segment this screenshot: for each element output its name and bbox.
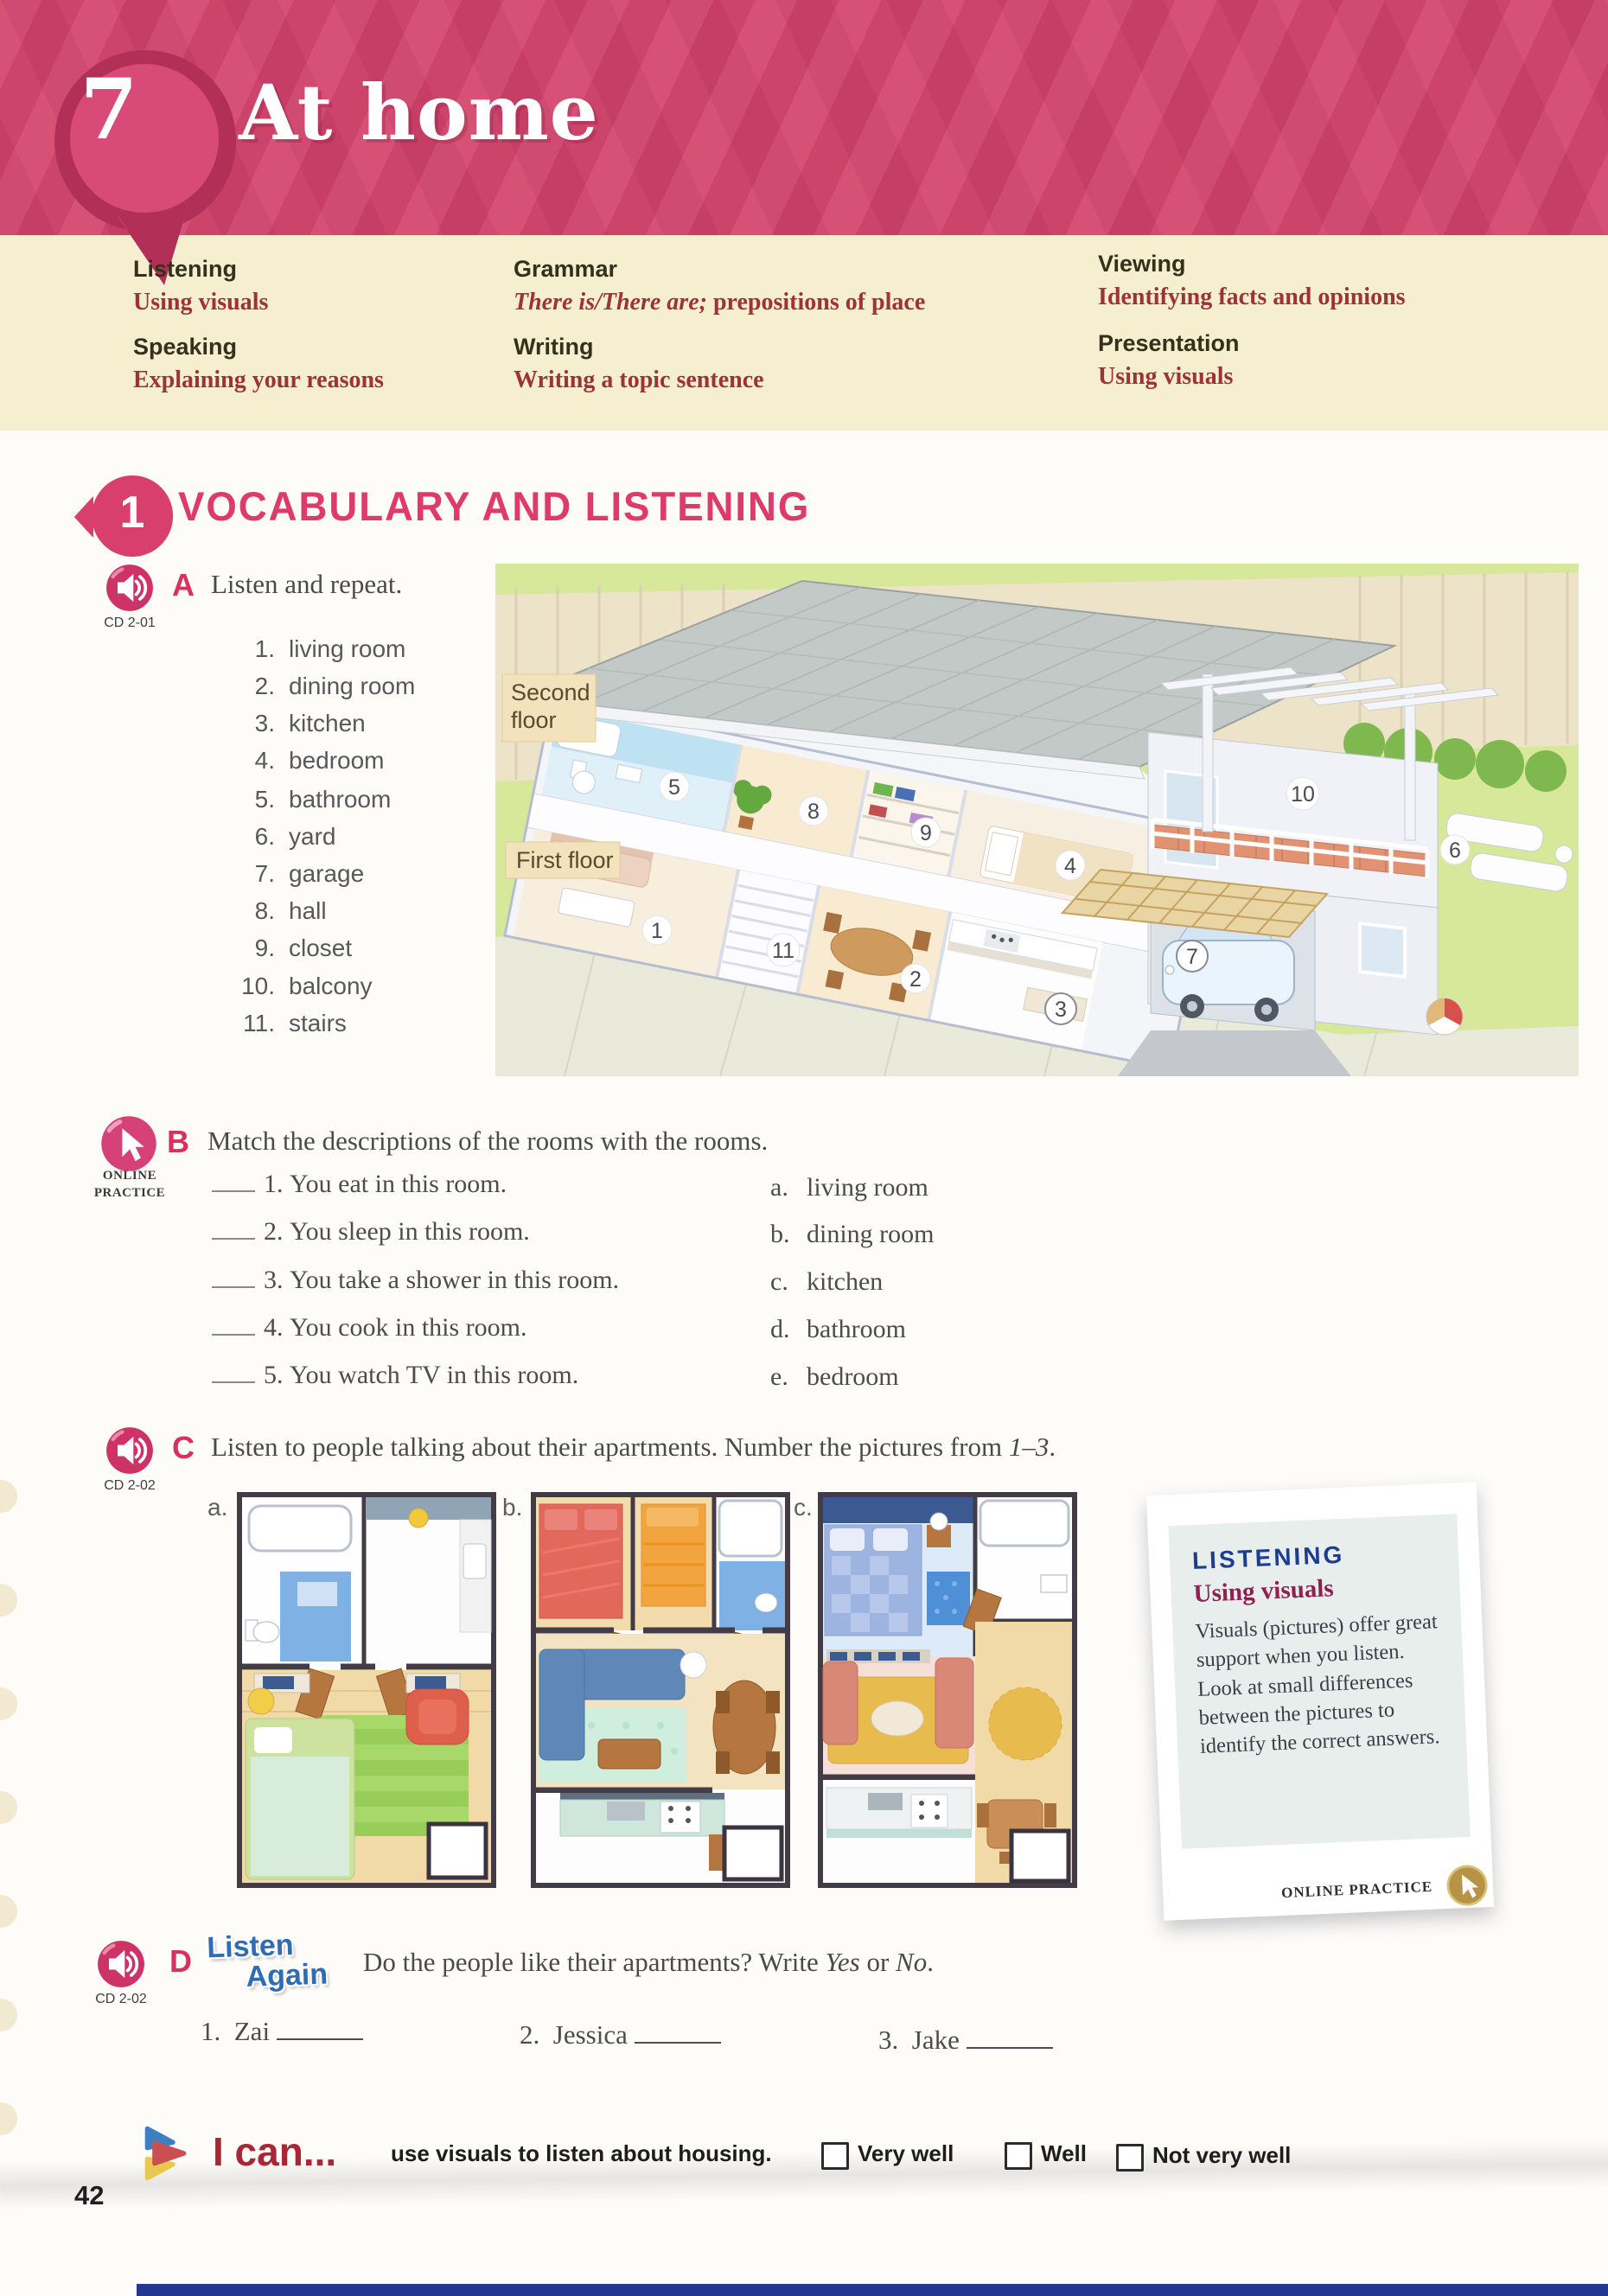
- floor-plan-a: [237, 1492, 496, 1888]
- section-number: 1: [102, 487, 163, 539]
- floor-plan-b: [531, 1492, 790, 1888]
- edge-decoration: [0, 2102, 17, 2135]
- tip-online-practice-label: ONLINE PRACTICE: [1281, 1878, 1433, 1902]
- vocab-item: 4.bedroom: [216, 746, 475, 775]
- answer-box-b[interactable]: [724, 1827, 782, 1879]
- answer-blank[interactable]: [212, 1361, 255, 1383]
- vocab-item: 5.bathroom: [216, 785, 475, 814]
- audio-icon[interactable]: [97, 1940, 145, 1988]
- picture-label: a.: [207, 1494, 227, 1521]
- svg-text:Second: Second: [511, 679, 590, 705]
- edge-decoration: [0, 1480, 17, 1513]
- textbook-page: 7 At home Listening Using visuals Speaki…: [0, 0, 1608, 2296]
- skill-value: Using visuals: [133, 289, 268, 316]
- svg-text:5: 5: [668, 775, 680, 800]
- edge-decoration: [0, 1687, 17, 1720]
- edge-decoration: [0, 1791, 17, 1824]
- svg-text:3: 3: [1055, 998, 1067, 1022]
- svg-text:First floor: First floor: [516, 847, 614, 873]
- unit-number: 7: [74, 61, 144, 158]
- svg-text:1: 1: [651, 919, 663, 943]
- skill-label: Presentation: [1098, 330, 1240, 357]
- online-practice-icon[interactable]: [100, 1115, 157, 1172]
- picture-label: b.: [502, 1494, 522, 1521]
- match-item[interactable]: 3. You take a shower in this room.: [212, 1265, 619, 1296]
- vocab-item: 7.garage: [216, 859, 475, 889]
- exercise-c-instruction: Listen to people talking about their apa…: [211, 1432, 1056, 1463]
- page-number: 42: [74, 2180, 104, 2211]
- checkbox-label: Very well: [858, 2140, 954, 2167]
- listen-again-logo: Listen Again: [207, 1928, 329, 1996]
- online-practice-label: PRACTICE: [78, 1186, 182, 1201]
- i-can-label: I can...: [213, 2128, 336, 2175]
- tip-subtitle: Using visuals: [1193, 1570, 1438, 1609]
- vocab-item: 3.kitchen: [216, 709, 475, 738]
- edge-decoration: [0, 1895, 17, 1928]
- floor-plan-c: [818, 1492, 1077, 1888]
- answer-blank[interactable]: [212, 1266, 255, 1288]
- next-page-edge: [137, 2284, 1608, 2296]
- answer-blank[interactable]: [212, 1313, 255, 1336]
- exercise-c-letter: C: [172, 1430, 195, 1466]
- cd-track-label: CD 2-01: [78, 615, 182, 631]
- edge-decoration: [0, 1999, 17, 2031]
- vocab-item: 8.hall: [216, 896, 475, 926]
- vocab-item: 11.stairs: [216, 1009, 475, 1038]
- svg-text:10: 10: [1291, 782, 1315, 807]
- unit-number-badge: [35, 35, 259, 294]
- svg-text:9: 9: [920, 821, 932, 845]
- exercise-d-letter: D: [169, 1943, 192, 1980]
- match-item[interactable]: 1. You eat in this room.: [212, 1169, 507, 1200]
- answer-blank[interactable]: [635, 2021, 721, 2044]
- unit-title: At home: [239, 67, 599, 157]
- beach-ball: [1426, 998, 1463, 1035]
- skill-value: Identifying facts and opinions: [1098, 284, 1406, 311]
- online-practice-icon[interactable]: [1445, 1864, 1489, 1907]
- skill-label: Writing: [514, 334, 593, 360]
- checkbox-label: Well: [1041, 2140, 1087, 2167]
- cd-track-label: CD 2-02: [78, 1478, 182, 1494]
- checkbox-very-well[interactable]: [821, 2142, 849, 2170]
- svg-text:11: 11: [772, 939, 794, 963]
- skill-label: Grammar: [514, 256, 617, 283]
- tip-title: LISTENING: [1191, 1537, 1436, 1575]
- svg-text:8: 8: [807, 800, 820, 824]
- checkbox-not-very-well[interactable]: [1116, 2144, 1144, 2172]
- skill-label: Viewing: [1098, 251, 1186, 277]
- yes-no-item[interactable]: 2. Jessica: [520, 2019, 721, 2050]
- match-option: e.bedroom: [770, 1362, 899, 1393]
- exercise-d-instruction: Do the people like their apartments? Wri…: [363, 1947, 934, 1978]
- exercise-a-letter: A: [172, 567, 195, 603]
- match-item[interactable]: 4. You cook in this room.: [212, 1312, 526, 1343]
- answer-box-a[interactable]: [429, 1824, 486, 1878]
- match-option: c.kitchen: [770, 1266, 883, 1298]
- section-title: VOCABULARY AND LISTENING: [178, 482, 810, 530]
- svg-text:4: 4: [1064, 854, 1076, 878]
- house-illustration: Second floor First floor 5 8 9 4 10 6 1 …: [495, 564, 1579, 1076]
- checkbox-label: Not very well: [1152, 2142, 1291, 2169]
- svg-text:floor: floor: [511, 707, 557, 733]
- answer-blank[interactable]: [212, 1217, 255, 1240]
- answer-box-c[interactable]: [1011, 1831, 1069, 1881]
- svg-text:6: 6: [1449, 839, 1461, 863]
- exercise-b-letter: B: [167, 1124, 189, 1160]
- vocab-item: 6.yard: [216, 822, 475, 851]
- exercise-b-instruction: Match the descriptions of the rooms with…: [207, 1126, 768, 1157]
- match-option: b.dining room: [770, 1219, 935, 1250]
- skill-value: Explaining your reasons: [133, 367, 384, 394]
- online-practice-label: ONLINE: [78, 1169, 182, 1183]
- skill-label: Speaking: [133, 334, 237, 360]
- skill-value: Writing a topic sentence: [514, 367, 764, 394]
- i-can-statement: use visuals to listen about housing.: [391, 2140, 772, 2167]
- answer-blank[interactable]: [277, 2018, 363, 2040]
- svg-text:7: 7: [1186, 945, 1198, 969]
- skill-value: Using visuals: [1098, 363, 1233, 391]
- i-can-icon: [142, 2123, 202, 2184]
- skill-label: Listening: [133, 256, 237, 283]
- listening-tip-panel: LISTENING Using visuals Visuals (picture…: [1168, 1514, 1470, 1849]
- match-option: d.bathroom: [770, 1314, 906, 1345]
- skill-value: There is/There are; prepositions of plac…: [514, 289, 925, 316]
- svg-text:2: 2: [909, 967, 922, 992]
- vocab-item: 9.closet: [216, 934, 475, 963]
- audio-icon[interactable]: [105, 1426, 154, 1475]
- match-item[interactable]: 2. You sleep in this room.: [212, 1216, 530, 1247]
- checkbox-well[interactable]: [1005, 2142, 1032, 2170]
- vocab-item: 1.living room: [216, 635, 475, 664]
- exercise-a-instruction: Listen and repeat.: [211, 569, 402, 600]
- vocab-item: 10.balcony: [216, 972, 475, 1001]
- edge-decoration: [0, 1584, 17, 1617]
- yes-no-item[interactable]: 3. Jake: [878, 2025, 1053, 2056]
- cd-track-label: CD 2-02: [69, 1992, 173, 2007]
- yes-no-item[interactable]: 1. Zai: [201, 2016, 363, 2047]
- match-item[interactable]: 5. You watch TV in this room.: [212, 1360, 578, 1391]
- match-option: a.living room: [770, 1172, 928, 1203]
- audio-icon[interactable]: [105, 564, 154, 612]
- answer-blank[interactable]: [967, 2026, 1053, 2049]
- vocab-item: 2.dining room: [216, 672, 475, 701]
- tip-body: Visuals (pictures) offer great support w…: [1195, 1607, 1445, 1761]
- picture-label: c.: [794, 1494, 813, 1521]
- answer-blank[interactable]: [212, 1170, 255, 1192]
- listening-tip-card: LISTENING Using visuals Visuals (picture…: [1146, 1482, 1494, 1921]
